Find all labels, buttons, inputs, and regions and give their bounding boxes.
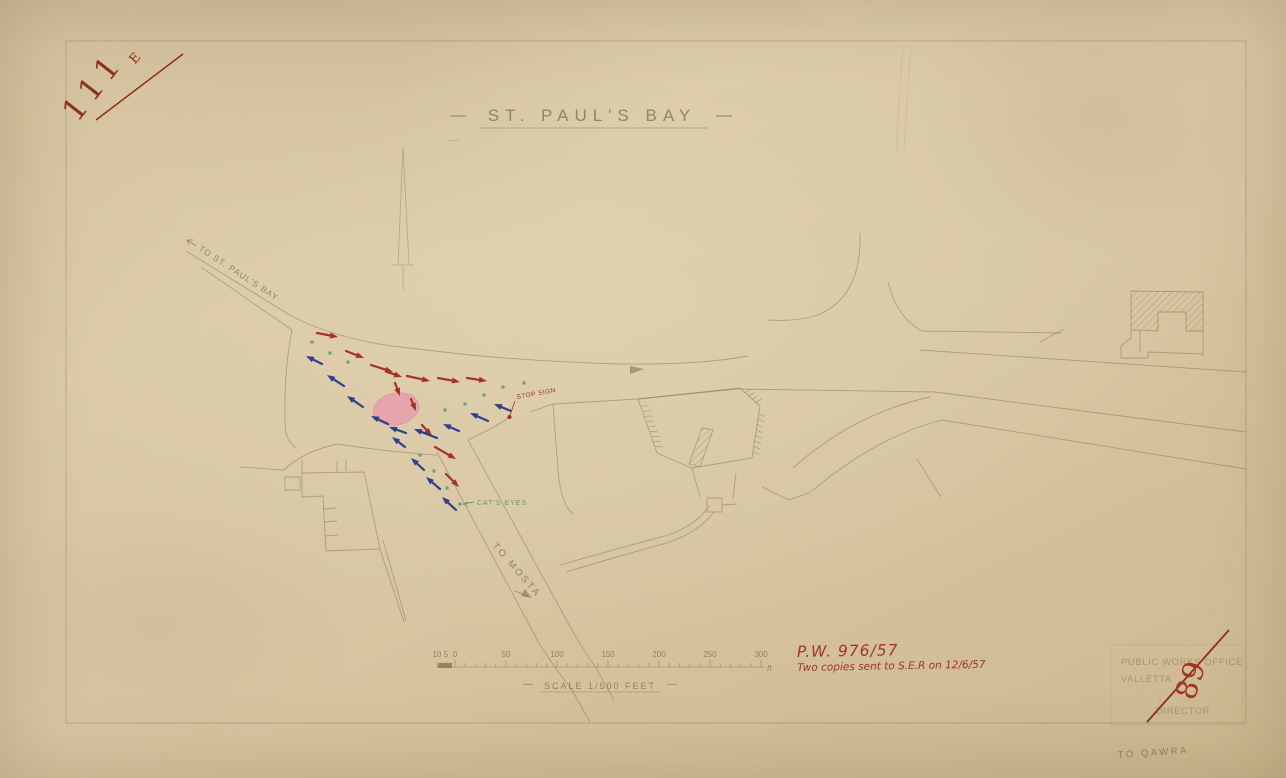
cats-eye-dot <box>328 351 332 355</box>
hatch-tick <box>756 430 763 433</box>
boundary-tick <box>1040 329 1064 342</box>
title-dash-left: — <box>450 107 466 124</box>
scale-tick-label: 5 <box>444 650 449 659</box>
cats-eye-dot <box>432 469 436 473</box>
scale-tick-label: 300 <box>754 650 768 659</box>
blue-traffic-arrow <box>389 427 406 433</box>
hatch-tick <box>753 452 760 455</box>
title-dash-right: — <box>716 107 732 124</box>
sheet-number: 111 <box>55 45 131 128</box>
cats-eye-dot <box>463 402 467 406</box>
cats-eyes-label: CAT'S EYES <box>477 500 527 507</box>
cats-eye-dot <box>346 360 350 364</box>
red-annotations: P.W. 976/57 Two copies sent to S.E.R on … <box>797 640 986 674</box>
road-south-edge-east <box>530 389 737 412</box>
scale-tick-label: 200 <box>652 650 666 659</box>
cats-eyes-annotation: CAT'S EYES <box>463 500 527 507</box>
st-pauls-direction-arrow-icon <box>187 240 196 246</box>
drawing-sheet: — ST. PAUL'S BAY — TO ST. PAUL'S BAY TO … <box>0 0 1286 778</box>
scale-tick-label: 50 <box>502 650 511 659</box>
road-labels: TO ST. PAUL'S BAY TO QAWRA TO MOSTA <box>187 240 1189 761</box>
cats-eye-dot <box>482 393 486 397</box>
qawra-road-south-edge <box>737 389 1246 432</box>
mosta-mouth-curb <box>468 417 510 440</box>
scale-tick-label: 0 <box>453 650 458 659</box>
cats-eye-dot <box>418 453 422 457</box>
blue-traffic-arrow <box>442 497 456 510</box>
hatch-tick <box>748 392 754 396</box>
plan-svg: — ST. PAUL'S BAY — TO ST. PAUL'S BAY TO … <box>0 0 1286 778</box>
cats-eye-dot <box>310 340 314 344</box>
sheet-border-frame <box>66 41 1246 723</box>
qawra-road-north-edge <box>920 350 1246 372</box>
hatch-tick <box>745 389 751 393</box>
blue-traffic-arrow <box>426 477 440 489</box>
building-northeast <box>1121 291 1203 358</box>
scale-solid-block <box>438 663 452 668</box>
hatch-tick <box>755 435 762 438</box>
page-title: ST. PAUL'S BAY <box>488 106 697 125</box>
red-traffic-arrow <box>438 378 460 384</box>
road-south-edge-center <box>337 444 437 455</box>
hatch-tick <box>757 419 764 422</box>
hatch-tick <box>754 446 761 449</box>
scale-tick-label: 250 <box>703 650 717 659</box>
road-network <box>186 233 1246 722</box>
scale-tick-label: 150 <box>601 650 615 659</box>
cats-eyes-arrow-icon <box>463 502 474 506</box>
top-left-corner-mark: 111 E <box>55 45 183 128</box>
blue-traffic-arrow <box>327 375 344 386</box>
hatch-tick <box>752 396 758 400</box>
blue-traffic-arrow <box>347 396 363 407</box>
junction-southwest-curb <box>240 444 337 470</box>
blue-traffic-arrow <box>470 413 488 421</box>
stamp-line2: VALLETTA <box>1121 674 1172 684</box>
red-traffic-arrow <box>371 365 393 372</box>
title-block: — ST. PAUL'S BAY — <box>450 106 732 128</box>
scale-dash-left: — <box>523 679 533 690</box>
red-traffic-arrow <box>407 376 430 382</box>
hatched-building <box>1131 291 1203 331</box>
southwest-sweep-outer <box>793 397 930 468</box>
scale-bar: 105050100150200250300 ft — SCALE 1/500 F… <box>433 650 773 692</box>
small-plot-lines <box>762 487 811 500</box>
red-traffic-arrow <box>346 351 364 358</box>
cats-eye-dot <box>445 486 449 490</box>
stop-sign-label: STOP SIGN <box>516 387 556 401</box>
fields-east <box>553 388 760 572</box>
label-to-mosta: TO MOSTA <box>490 541 543 600</box>
stop-sign-annotation: STOP SIGN <box>507 387 556 419</box>
cats-eye-dot <box>522 381 526 385</box>
red-traffic-arrow <box>435 447 456 459</box>
southwest-sweep-inner <box>812 420 1246 491</box>
north-sideroad-west-curve <box>767 233 860 320</box>
stop-sign-dot <box>507 415 511 419</box>
blue-traffic-arrow <box>392 437 405 447</box>
qawra-direction-arrow-icon <box>630 366 644 374</box>
plot-building-bar <box>689 428 713 467</box>
scale-unit: ft <box>767 663 772 673</box>
scale-tick-label: 10 <box>433 650 442 659</box>
cats-eye-dot <box>443 408 447 412</box>
label-to-qawra: TO QAWRA <box>1117 745 1189 761</box>
roundabout-island <box>370 389 422 430</box>
south-branch <box>917 459 941 497</box>
cats-eye-dot <box>458 502 462 506</box>
hatch-tick <box>754 441 761 444</box>
copies-sent-note: Two copies sent to S.E.R on 12/6/57 <box>797 659 986 674</box>
hatch-tick <box>755 399 761 403</box>
north-sideroad-east-curve <box>888 282 1062 333</box>
red-traffic-arrow <box>446 474 459 487</box>
blue-traffic-arrow <box>494 404 511 411</box>
red-traffic-arrow <box>387 372 402 378</box>
blue-traffic-arrow <box>443 424 459 431</box>
scale-caption: SCALE 1/500 FEET <box>544 681 656 691</box>
stamp-line3: DIRECTOR <box>1156 706 1210 716</box>
pw-reference: P.W. 976/57 <box>797 641 899 661</box>
scale-dash-right: — <box>667 679 677 690</box>
cats-eye-dot <box>501 385 505 389</box>
junction-west-curb <box>285 330 296 448</box>
paper-creases <box>896 45 911 152</box>
scale-tick-label: 100 <box>550 650 564 659</box>
blue-traffic-arrow <box>411 458 424 470</box>
hatch-tick <box>758 413 765 416</box>
red-traffic-arrow <box>467 377 487 383</box>
blue-traffic-arrow <box>306 356 322 364</box>
pencil-mark <box>447 140 459 141</box>
cats-eyes-dots <box>310 340 526 506</box>
sheet-number-superscript: E <box>127 50 145 67</box>
mosta-road-east-edge <box>468 440 614 700</box>
hatch-tick <box>757 424 764 427</box>
road-north-edge <box>186 251 748 364</box>
west-field-boundary <box>380 540 406 622</box>
taper-spike <box>392 147 414 290</box>
stop-sign-leader-line <box>510 401 515 415</box>
buildings-southwest <box>285 460 380 551</box>
